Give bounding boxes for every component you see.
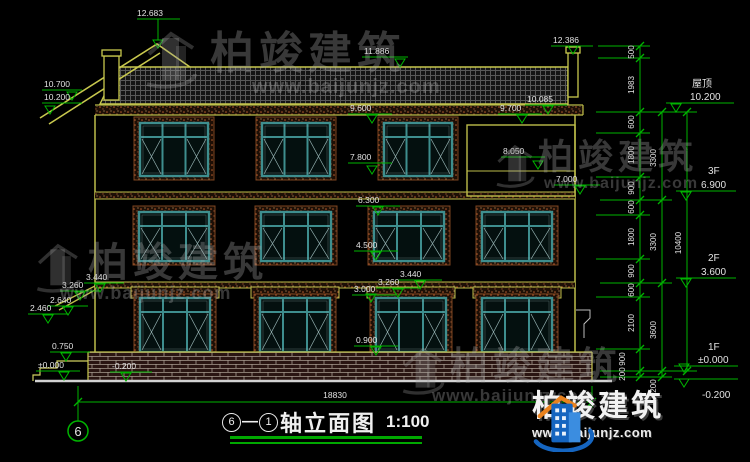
level-label: 7.800: [350, 152, 372, 162]
building-facade: [33, 44, 612, 381]
level-label: ±0.000: [38, 360, 64, 370]
dim-value: 200: [618, 367, 627, 381]
level-label: 12.386: [553, 35, 579, 45]
floor-level: 10.200: [690, 92, 721, 103]
axis-number: 6: [228, 416, 234, 428]
dim-value: 600: [627, 200, 636, 214]
level-label: 3.440: [86, 272, 108, 282]
window: [256, 117, 336, 180]
drawing-scale: 1:100: [386, 412, 429, 432]
watermark-logo-icon: [143, 28, 199, 94]
floor-label: 3F: [708, 166, 720, 177]
floor-level: 3.600: [701, 267, 726, 278]
window: [134, 294, 216, 354]
level-label: 11.886: [364, 46, 390, 56]
window: [378, 117, 458, 180]
dim-value: 900: [627, 181, 636, 195]
dim-value: 600: [627, 115, 636, 129]
dim-value: 500: [627, 45, 636, 59]
floor-label: 1F: [708, 342, 720, 353]
drawing-title: 6 — 1 轴立面图 1:100: [222, 406, 430, 438]
dim-value: 600: [627, 283, 636, 297]
watermark-logo-icon: [400, 342, 446, 402]
window: [134, 117, 214, 180]
window: [476, 294, 558, 354]
axis-bubble-end: 1: [259, 413, 278, 432]
axis-range-dash: —: [242, 413, 258, 431]
watermark-logo-icon: [494, 138, 536, 196]
axis-number: 1: [265, 416, 271, 428]
watermark-logo-icon: [34, 238, 82, 300]
company-logo: 柏竣建筑 www.baijunjz.com: [532, 392, 664, 440]
dim-value: 3600: [649, 321, 658, 339]
window: [476, 206, 558, 265]
level-label: 10.200: [44, 92, 70, 102]
dim-value: 1800: [627, 228, 636, 246]
floor-level: ±0.000: [698, 355, 729, 366]
company-logo-icon: [532, 392, 594, 452]
floor-label: 2F: [708, 253, 720, 264]
level-label: -0.200: [112, 361, 136, 371]
window: [133, 206, 215, 265]
level-label: 9.700: [500, 103, 522, 113]
title-underline-thin: [230, 442, 422, 444]
dim-value: 1800: [627, 146, 636, 164]
floor-level: 6.900: [701, 180, 726, 191]
grid-bubble-label: 6: [74, 424, 81, 439]
dim-value: 10400: [674, 231, 683, 254]
title-underline-thick: [230, 436, 422, 439]
window: [368, 206, 450, 265]
level-label: 4.500: [356, 240, 378, 250]
floor-level: -0.200: [702, 390, 731, 401]
level-label: 10.085: [527, 94, 553, 104]
cad-elevation-screenshot: 12.683 10.700 10.200 3.440 3.260 2.640 2…: [0, 0, 750, 462]
level-label: 0.900: [356, 335, 378, 345]
drawing-title-text: 轴立面图: [280, 406, 376, 438]
dim-value: 900: [618, 352, 627, 366]
level-label: 10.700: [44, 79, 70, 89]
overall-width-dim: 18830: [323, 390, 347, 400]
dim-value: 3300: [649, 233, 658, 251]
level-label: 12.683: [137, 8, 163, 18]
floor-label: 屋顶: [692, 78, 712, 90]
dim-value: 900: [627, 264, 636, 278]
axis-bubble-start: 6: [222, 413, 241, 432]
level-label: 2.460: [30, 303, 52, 313]
level-label: 3.000: [354, 284, 376, 294]
level-label: 3.440: [400, 269, 422, 279]
dim-value: 1983: [627, 76, 636, 94]
dim-value: 3300: [649, 149, 658, 167]
level-label: 9.600: [350, 103, 372, 113]
corbel-detail: [576, 310, 590, 338]
window: [255, 206, 337, 265]
level-label: 0.750: [52, 341, 74, 351]
level-label: 3.260: [378, 277, 400, 287]
chimney-left: [102, 50, 121, 100]
dim-value: 2100: [627, 314, 636, 332]
level-label: 6.300: [358, 195, 380, 205]
brick-plinth: [88, 352, 592, 381]
level-label: 7.000: [556, 174, 578, 184]
window: [254, 294, 336, 354]
